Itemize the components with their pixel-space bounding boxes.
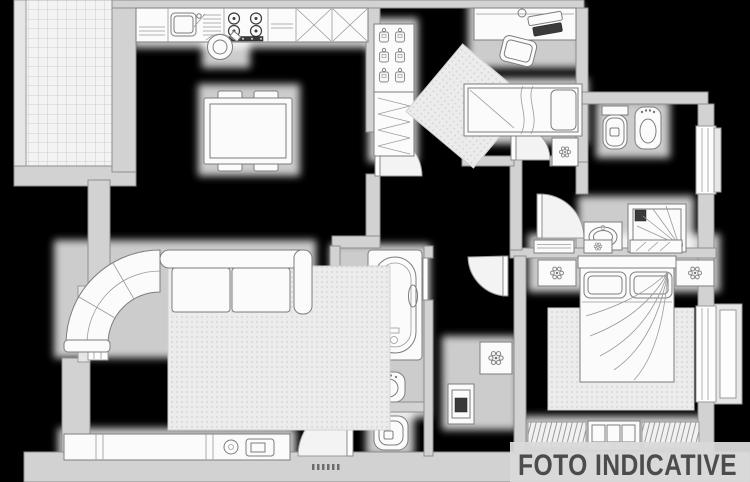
double-bed <box>578 256 676 382</box>
storage-cabinet <box>448 384 474 424</box>
dressers <box>534 240 682 253</box>
floor-plan-image: FOTO INDICATIVE <box>0 0 750 482</box>
single-bed <box>464 84 582 136</box>
nightstand-left <box>538 260 576 286</box>
toilet <box>602 106 628 149</box>
balcony-tiled-floor <box>26 0 112 166</box>
watermark: FOTO INDICATIVE <box>510 442 750 482</box>
balcony-railing <box>14 0 26 172</box>
dining-table <box>204 91 292 171</box>
desk <box>474 8 576 40</box>
tv-unit <box>246 439 274 456</box>
floor-plan-svg: FOTO INDICATIVE <box>0 0 750 482</box>
master-bedroom-bay-window <box>696 304 742 404</box>
plant-stand <box>480 342 512 374</box>
balcony <box>26 0 112 166</box>
wardrobe <box>374 24 414 156</box>
bidet <box>635 107 661 149</box>
nightstand-right <box>676 260 714 286</box>
sideboard <box>64 434 290 460</box>
watermark-text: FOTO INDICATIVE <box>518 449 737 482</box>
bathroom-1-window <box>696 126 721 194</box>
nightstand <box>552 138 578 166</box>
